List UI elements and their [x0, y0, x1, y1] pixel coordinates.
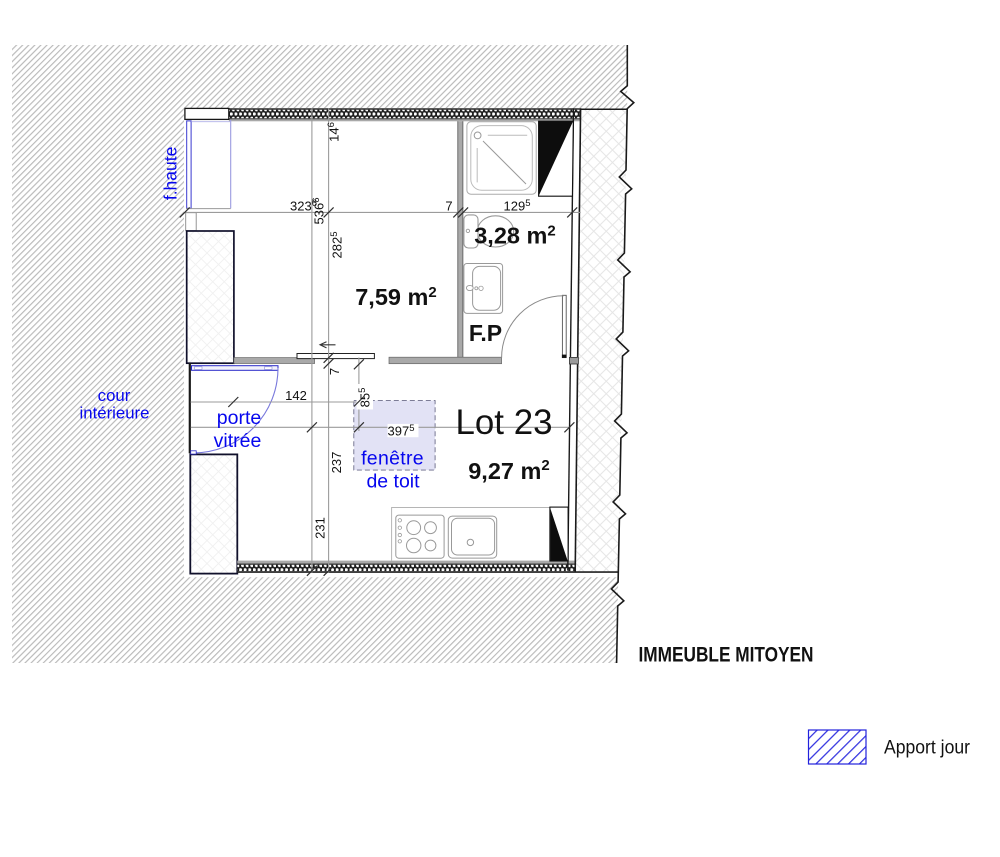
svg-text:IMMEUBLE MITOYEN: IMMEUBLE MITOYEN [639, 644, 814, 667]
svg-text:fenêtre: fenêtre [361, 448, 424, 470]
svg-text:de toit: de toit [366, 471, 420, 493]
svg-text:intérieure: intérieure [80, 404, 150, 423]
svg-text:cour: cour [98, 386, 131, 405]
svg-text:Lot 23: Lot 23 [456, 403, 553, 442]
svg-text:231: 231 [313, 517, 328, 539]
svg-text:237: 237 [329, 452, 344, 474]
svg-text:vitrée: vitrée [214, 430, 262, 452]
svg-text:3,28 m2: 3,28 m2 [474, 222, 556, 248]
svg-text:7: 7 [327, 368, 342, 375]
svg-text:9,27 m2: 9,27 m2 [468, 457, 550, 484]
svg-text:f.haute: f.haute [161, 147, 181, 201]
svg-text:142: 142 [285, 388, 307, 403]
svg-text:porte: porte [217, 407, 261, 429]
svg-text:F.P: F.P [469, 320, 502, 346]
svg-text:7: 7 [445, 199, 452, 214]
svg-text:Apport jour: Apport jour [884, 737, 970, 759]
svg-text:7,59 m2: 7,59 m2 [355, 284, 437, 310]
